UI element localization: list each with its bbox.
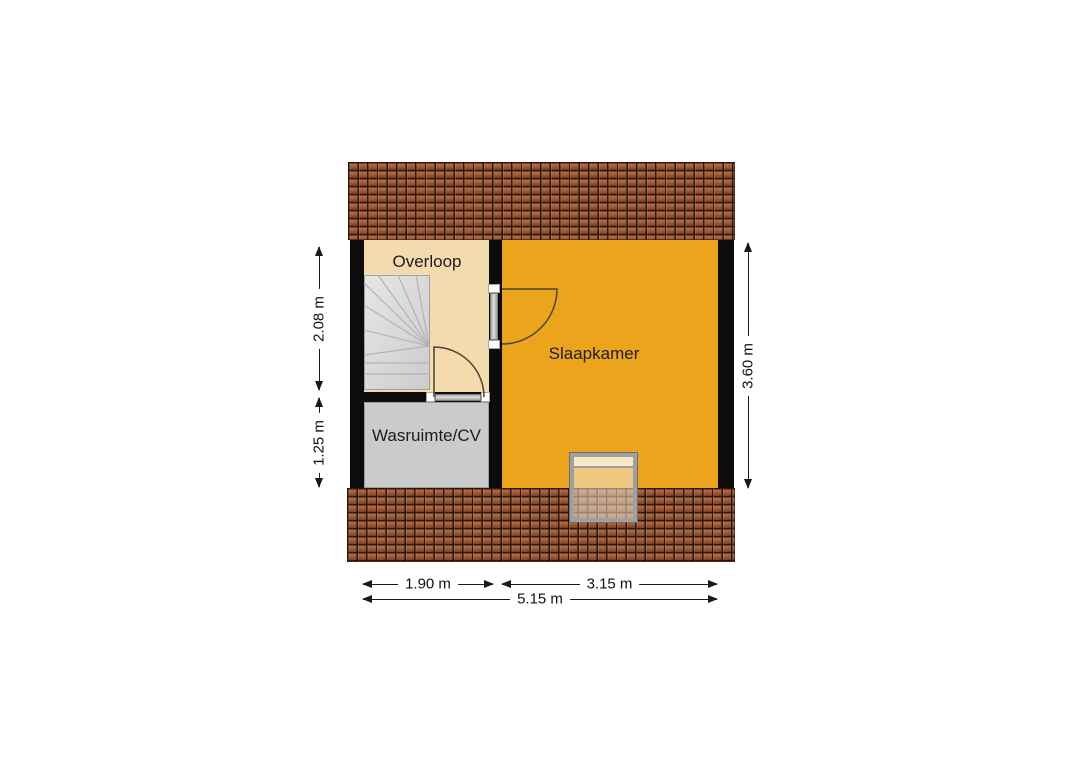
- dimension-label: 3.15 m: [580, 576, 640, 593]
- dimension-label: 5.15 m: [510, 591, 570, 608]
- room-slaapkamer: [502, 240, 718, 488]
- roof-top: [348, 162, 735, 240]
- wall-overloop-slaapkamer: [489, 240, 502, 488]
- skylight-window-icon: [570, 453, 637, 522]
- dimension-label: 3.60 m: [740, 336, 757, 396]
- skylight-sash: [574, 457, 633, 468]
- dimension-bottom-right: 3.15 m: [502, 584, 717, 585]
- dimension-bottom-left: 1.90 m: [363, 584, 493, 585]
- door-jamb: [426, 392, 435, 402]
- dimension-right-side: 3.60 m: [748, 243, 749, 488]
- door-jamb: [488, 284, 500, 293]
- dimension-label: 1.90 m: [398, 576, 458, 593]
- door-frame-slaapkamer: [490, 293, 498, 340]
- door-jamb: [481, 392, 490, 402]
- wall-left: [350, 240, 364, 488]
- door-frame-overloop: [435, 394, 481, 401]
- floorplan-canvas: Overloop Slaapkamer Wasruimte/CV 2.08 m …: [0, 0, 1080, 764]
- room-label-slaapkamer: Slaapkamer: [486, 344, 702, 364]
- room-label-overloop: Overloop: [364, 252, 490, 272]
- roof-bottom: [347, 488, 735, 562]
- stairs: [364, 275, 430, 390]
- dimension-bottom-total: 5.15 m: [363, 599, 717, 600]
- wall-right: [718, 240, 734, 488]
- dimension-left-lower: 1.25 m: [319, 398, 320, 487]
- dimension-left-upper: 2.08 m: [319, 247, 320, 390]
- dimension-label: 2.08 m: [311, 289, 328, 349]
- dimension-label: 1.25 m: [311, 413, 328, 473]
- room-label-wasruimte: Wasruimte/CV: [364, 426, 489, 446]
